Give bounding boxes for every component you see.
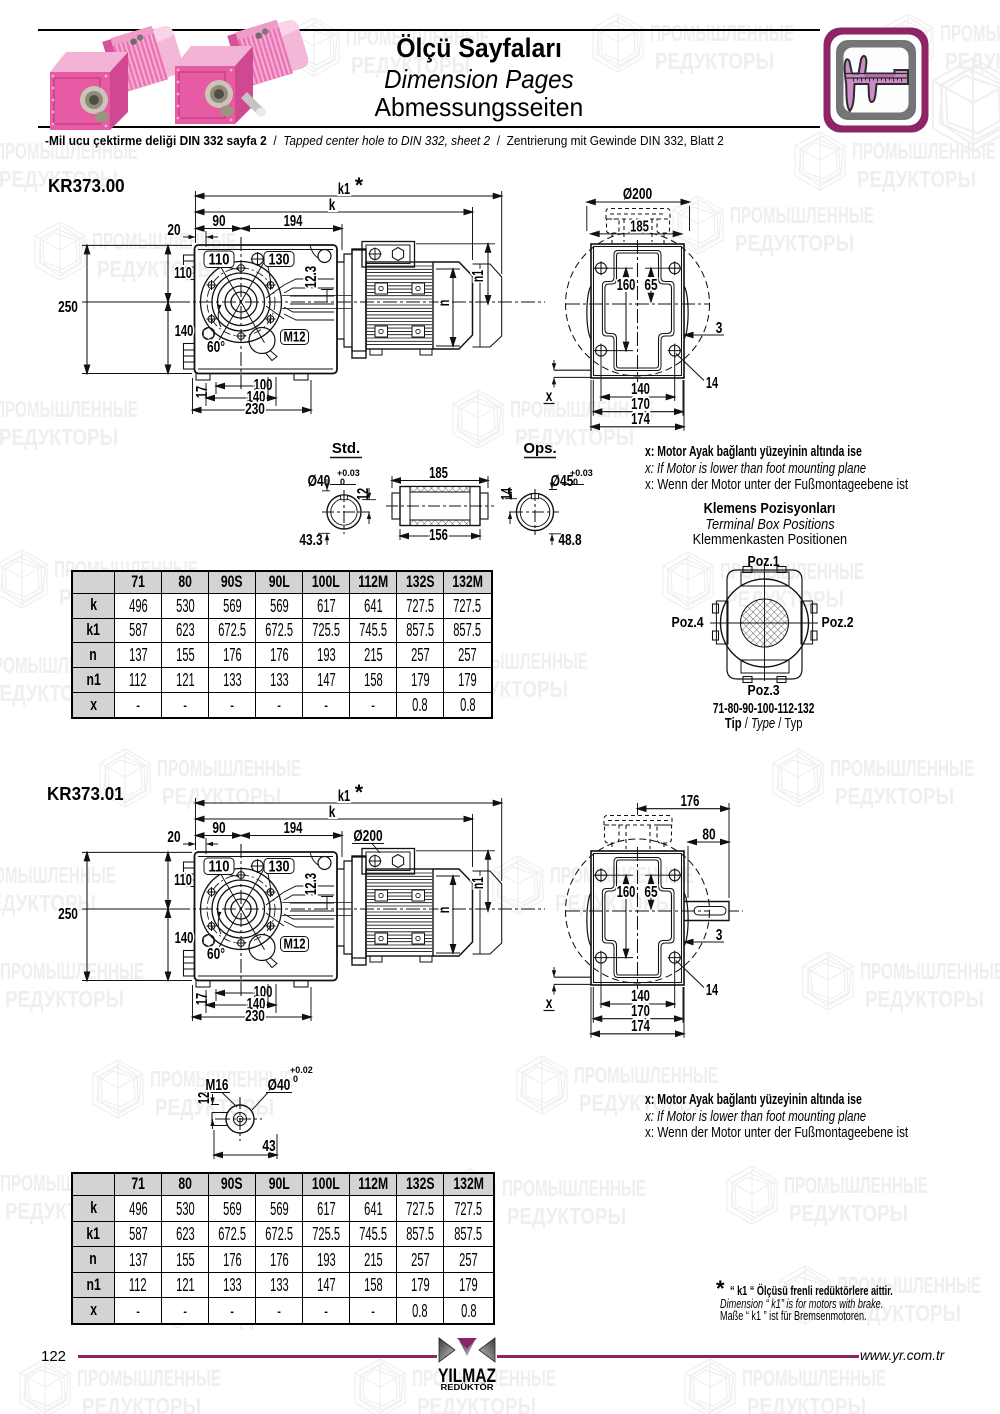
svg-text:185: 185 bbox=[429, 465, 448, 482]
svg-text:250: 250 bbox=[58, 299, 78, 316]
svg-text:n: n bbox=[436, 300, 453, 307]
svg-text:48.8: 48.8 bbox=[558, 532, 581, 549]
svg-text:k: k bbox=[329, 197, 336, 214]
svg-text:20: 20 bbox=[167, 222, 180, 239]
svg-text:43.3: 43.3 bbox=[299, 532, 322, 549]
svg-text:43: 43 bbox=[262, 1138, 275, 1155]
svg-text:160: 160 bbox=[617, 277, 636, 294]
svg-text:3: 3 bbox=[716, 320, 723, 337]
svg-text:230: 230 bbox=[245, 401, 265, 418]
svg-text:n1: n1 bbox=[470, 270, 487, 282]
svg-text:0: 0 bbox=[573, 477, 578, 487]
svg-text:k1: k1 bbox=[338, 181, 350, 198]
svg-text:60°: 60° bbox=[207, 339, 225, 356]
svg-text:Std.: Std. bbox=[332, 440, 360, 457]
svg-text:156: 156 bbox=[429, 527, 448, 544]
svg-text:17: 17 bbox=[194, 386, 211, 398]
svg-text:REDÜKTÖR: REDÜKTÖR bbox=[441, 1383, 494, 1391]
svg-text:80: 80 bbox=[702, 827, 715, 844]
svg-text:M12: M12 bbox=[284, 330, 306, 346]
svg-text:110: 110 bbox=[209, 252, 230, 269]
svg-text:65: 65 bbox=[644, 277, 657, 294]
svg-text:0: 0 bbox=[293, 1074, 298, 1084]
svg-text:Ops.: Ops. bbox=[523, 440, 556, 457]
svg-text:176: 176 bbox=[681, 793, 700, 810]
svg-text:12: 12 bbox=[196, 1092, 213, 1104]
svg-text:*: * bbox=[355, 174, 364, 197]
svg-text:Ø200: Ø200 bbox=[353, 828, 382, 845]
svg-text:194: 194 bbox=[284, 213, 303, 230]
svg-text:140: 140 bbox=[175, 323, 194, 340]
svg-text:Ø200: Ø200 bbox=[623, 186, 652, 203]
svg-text:12.3: 12.3 bbox=[303, 266, 320, 288]
svg-text:90: 90 bbox=[212, 213, 225, 230]
svg-text:14: 14 bbox=[706, 375, 718, 392]
svg-text:Ø40: Ø40 bbox=[268, 1077, 291, 1094]
svg-text:185: 185 bbox=[630, 219, 649, 236]
svg-text:x: x bbox=[546, 388, 553, 405]
svg-text:0: 0 bbox=[340, 477, 345, 487]
svg-text:M16: M16 bbox=[206, 1077, 229, 1094]
svg-text:130: 130 bbox=[269, 252, 290, 269]
svg-text:174: 174 bbox=[631, 411, 650, 428]
svg-text:110: 110 bbox=[174, 265, 192, 282]
